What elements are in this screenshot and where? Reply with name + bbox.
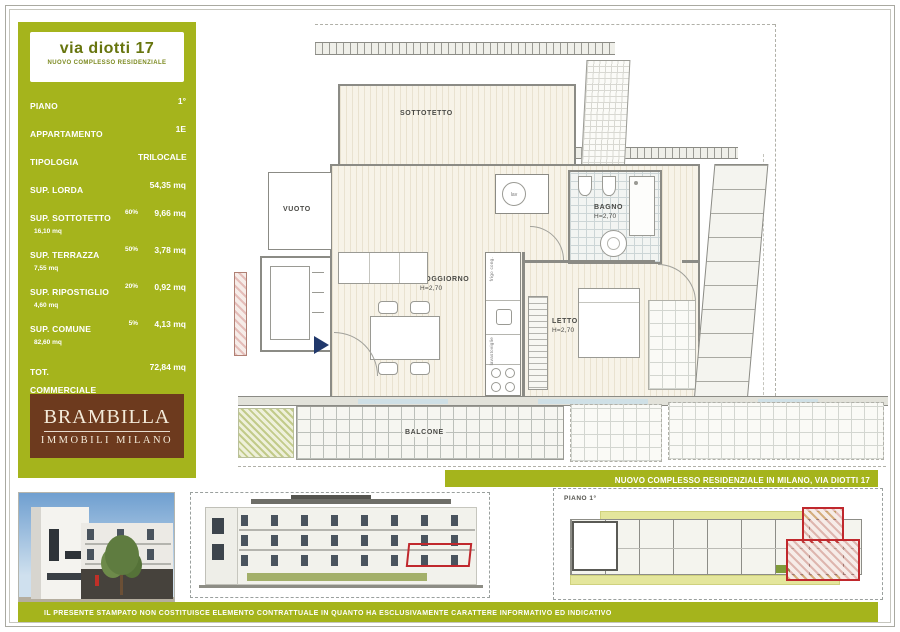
shared-wall-hatch [234, 272, 247, 356]
wardrobe-icon [528, 296, 548, 390]
entrance-arrow-icon [314, 336, 329, 354]
row-sublabel: 16,10 mq [30, 228, 116, 235]
burner [505, 382, 515, 392]
row-percent: 20% [116, 283, 138, 290]
washing-machine-icon: lav [502, 182, 526, 206]
page-subtitle: NUOVO COMPLESSO RESIDENZIALE [30, 60, 184, 66]
row-value: 1E [138, 124, 186, 134]
shower-drain [634, 181, 638, 185]
room-label-balcone: BALCONE [403, 429, 446, 437]
room-label-sottotetto: SOTTOTETTO [400, 110, 453, 118]
burner [505, 368, 515, 378]
boundary-dashed-line [775, 24, 776, 396]
shower-icon [629, 176, 655, 236]
row-value: 4,13 mq [138, 319, 186, 329]
row-sublabel: 7,55 mq [30, 265, 116, 272]
elevation-left-tower [205, 507, 239, 585]
room-vuoto: VUOTO [268, 172, 332, 250]
row-label: SUP. COMUNE [30, 324, 91, 334]
window-segment [358, 399, 448, 404]
burner [491, 382, 501, 392]
table-row: APPARTAMENTO 1E [30, 124, 186, 142]
row-value: 54,35 mq [138, 180, 186, 190]
bed-pillows [579, 289, 639, 303]
table-row: TIPOLOGIA TRILOCALE [30, 152, 186, 170]
label-lav: lav [511, 192, 517, 198]
dishwasher-label: lavastoviglie [489, 337, 494, 365]
keyplan-highlight-upper [802, 507, 844, 543]
row-value: 3,78 mq [138, 245, 186, 255]
row-label: SUP. SOTTOTETTO [30, 213, 111, 223]
building-elevation [190, 492, 490, 598]
sink-icon [600, 230, 627, 257]
location-banner-text: NUOVO COMPLESSO RESIDENZIALE IN MILANO, … [615, 476, 878, 485]
terrace-section [668, 402, 884, 460]
row-label: TIPOLOGIA [30, 157, 79, 167]
dishwasher-icon: lavastoviglie [486, 335, 520, 365]
bedroom-side-unit [648, 300, 696, 390]
title-box: via diotti 17 NUOVO COMPLESSO RESIDENZIA… [30, 32, 184, 82]
render-building-face [31, 507, 41, 599]
fridge-icon: frigo cong. [486, 253, 520, 301]
stair-line [312, 312, 324, 313]
planter-greenery [238, 408, 294, 458]
render-window [49, 529, 59, 561]
wall-segment [682, 260, 700, 263]
chair-icon [378, 362, 398, 375]
room-label-bagno: BAGNOH=2,70 [594, 204, 623, 221]
chair-icon [378, 301, 398, 314]
row-value: TRILOCALE [138, 152, 186, 162]
table-row: SUP. TERRAZZA7,55 mq 50% 3,78 mq [30, 245, 186, 272]
row-label: TOT. COMMERCIALE [30, 367, 96, 395]
disclaimer-bar: IL PRESENTE STAMPATO NON COSTITUISCE ELE… [18, 602, 878, 622]
room-label-vuoto: VUOTO [283, 206, 311, 214]
sink-basin [607, 237, 620, 250]
apartment-highlight-box [406, 543, 473, 567]
elevation-balcony-rail [239, 529, 475, 531]
row-percent: 5% [116, 320, 138, 327]
bed-icon [578, 288, 640, 358]
elevation-window-row [241, 515, 473, 526]
row-label: APPARTAMENTO [30, 129, 103, 139]
wall-segment [522, 252, 525, 398]
elevation-window [212, 544, 224, 560]
render-window [47, 573, 85, 580]
row-value: 0,92 mq [138, 282, 186, 292]
row-label: SUP. LORDA [30, 185, 83, 195]
row-percent: 50% [116, 246, 138, 253]
table-row: SUP. RIPOSTIGLIO4,60 mq 20% 0,92 mq [30, 282, 186, 309]
render-person-figure [95, 575, 99, 586]
row-percent: 60% [116, 209, 138, 216]
dining-table-icon [370, 316, 440, 360]
sloped-terrace-strip [694, 164, 769, 402]
chair-icon [410, 301, 430, 314]
logo-tagline: IMMOBILI MILANO [30, 435, 184, 446]
render-tree-trunk [120, 573, 123, 595]
property-data-table: PIANO 1° APPARTAMENTO 1E TIPOLOGIA TRILO… [30, 96, 186, 408]
row-label: SUP. RIPOSTIGLIO [30, 287, 109, 297]
room-balcone: BALCONE [296, 406, 564, 460]
kitchen-sink-icon [486, 301, 520, 335]
logo-name: BRAMBILLA [44, 406, 171, 432]
stair-line [312, 292, 324, 293]
elevation-ground-line [199, 585, 483, 588]
sidebar: via diotti 17 NUOVO COMPLESSO RESIDENZIA… [18, 22, 196, 478]
table-row: SUP. COMUNE82,60 mq 5% 4,13 mq [30, 319, 186, 346]
bidet-icon [602, 176, 616, 196]
chair-icon [410, 362, 430, 375]
brochure-page: via diotti 17 NUOVO COMPLESSO RESIDENZIA… [0, 0, 900, 632]
elevation-roof-bar [251, 499, 451, 504]
table-row-total: TOT. COMMERCIALE 72,84 mq [30, 362, 186, 398]
table-row: SUP. LORDA 54,35 mq [30, 180, 186, 198]
boundary-dashed-line [315, 24, 775, 25]
floor-plan: SOTTOTETTO VUOTO lav [230, 14, 890, 466]
key-plan-label: PIANO 1° [564, 495, 597, 502]
terrace-section [570, 404, 662, 462]
burner [491, 368, 501, 378]
row-label: SUP. TERRAZZA [30, 250, 100, 260]
toilet-icon [578, 176, 592, 196]
wall-segment [525, 260, 655, 263]
room-bagno: BAGNOH=2,70 [568, 170, 662, 264]
keyplan-stair-core [572, 521, 618, 571]
location-banner: NUOVO COMPLESSO RESIDENZIALE IN MILANO, … [445, 470, 878, 487]
table-row: PIANO 1° [30, 96, 186, 114]
elevation-window [212, 518, 224, 534]
brambilla-logo: BRAMBILLA IMMOBILI MILANO [30, 394, 184, 458]
fridge-label: frigo cong. [489, 257, 494, 281]
row-value: 72,84 mq [138, 362, 186, 372]
row-sublabel: 4,60 mq [30, 302, 116, 309]
boundary-dashed-line [238, 466, 886, 467]
keyplan-highlight-unit [786, 539, 860, 581]
laundry-closet: lav [495, 174, 549, 214]
stair-line [312, 272, 324, 273]
row-value: 9,66 mq [138, 208, 186, 218]
render-tree [105, 535, 139, 575]
key-plan: PIANO 1° [553, 488, 883, 600]
row-sublabel: 82,60 mq [30, 339, 116, 346]
sink-bowl [496, 309, 512, 325]
sofa-cushion-line [399, 253, 400, 283]
elevator-cab [270, 266, 310, 340]
kitchen-unit: frigo cong. lavastoviglie [485, 252, 521, 396]
disclaimer-text: IL PRESENTE STAMPATO NON COSTITUISCE ELE… [18, 610, 612, 617]
roof-edge-band [315, 42, 615, 55]
stove-icon [486, 365, 520, 397]
building-render-photo [18, 492, 175, 612]
elevation-hedge [247, 573, 427, 581]
table-row: SUP. SOTTOTETTO16,10 mq 60% 9,66 mq [30, 208, 186, 235]
room-label-letto: LETTOH=2,70 [552, 318, 578, 335]
row-label: PIANO [30, 101, 58, 111]
page-title: via diotti 17 [30, 40, 184, 58]
sofa-cushion-line [369, 253, 370, 283]
elevation-roof-bar [291, 495, 371, 499]
sofa-icon [338, 252, 428, 284]
row-value: 1° [138, 96, 186, 106]
